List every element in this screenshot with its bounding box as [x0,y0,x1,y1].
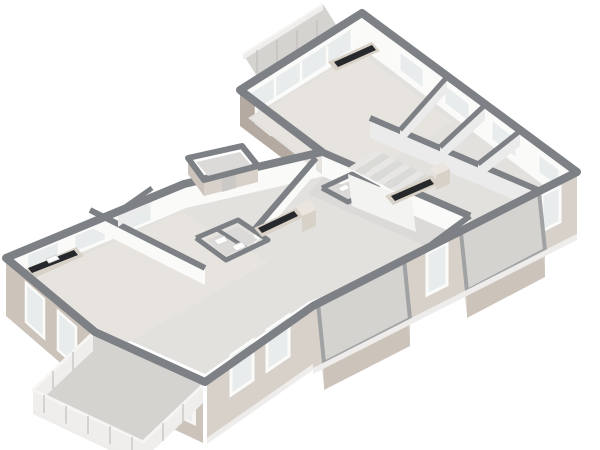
floorplan-svg [0,0,600,450]
floorplan-3d-render [0,0,600,450]
